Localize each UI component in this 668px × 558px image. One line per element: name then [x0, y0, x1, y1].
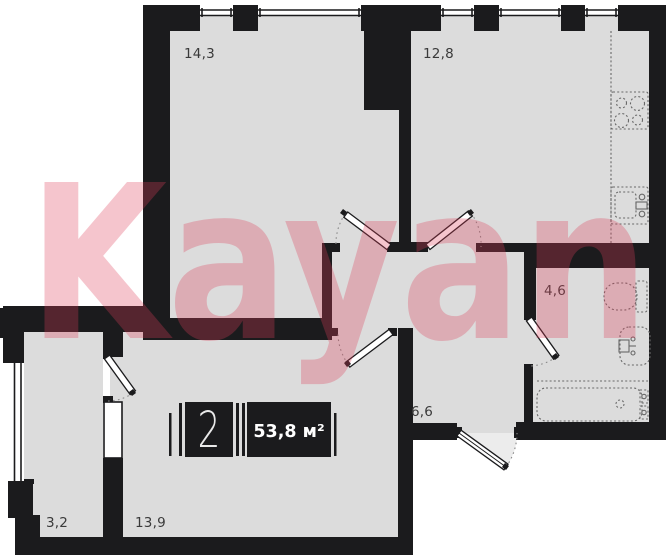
room-area-label-bathroom: 4,6	[544, 283, 566, 299]
window-icon	[200, 5, 233, 31]
floor-plan: 14,3 12,8 4,6 6,6 3,2 13,9 2 53,8 м² Kay…	[0, 0, 668, 558]
badge-total-area: 53,8 м²	[253, 422, 324, 442]
room-area-label-bedroom: 13,9	[135, 515, 166, 531]
window-icon	[258, 5, 361, 31]
badge-bar	[334, 413, 337, 456]
badge-bar	[236, 403, 239, 456]
balcony-inner-window-icon	[104, 402, 122, 458]
window-icon	[441, 5, 474, 31]
apartment-badge: 2 53,8 м²	[169, 402, 337, 460]
room-area-label-hallway: 6,6	[411, 404, 433, 420]
balcony-window-icon	[12, 363, 24, 481]
room-area-label-kitchen: 12,8	[423, 46, 454, 62]
floor-plan-page: 14,3 12,8 4,6 6,6 3,2 13,9 2 53,8 м² Kay…	[0, 0, 668, 558]
badge-bar	[179, 403, 182, 456]
window-icon	[499, 5, 561, 31]
room-area-label-living-room: 14,3	[184, 46, 215, 62]
badge-bar	[169, 413, 172, 456]
floor-balcony	[24, 332, 103, 540]
room-area-label-balcony: 3,2	[46, 515, 68, 531]
badge-rooms-count: 2	[198, 402, 221, 459]
window-icon	[585, 5, 618, 31]
badge-bar	[242, 403, 245, 456]
